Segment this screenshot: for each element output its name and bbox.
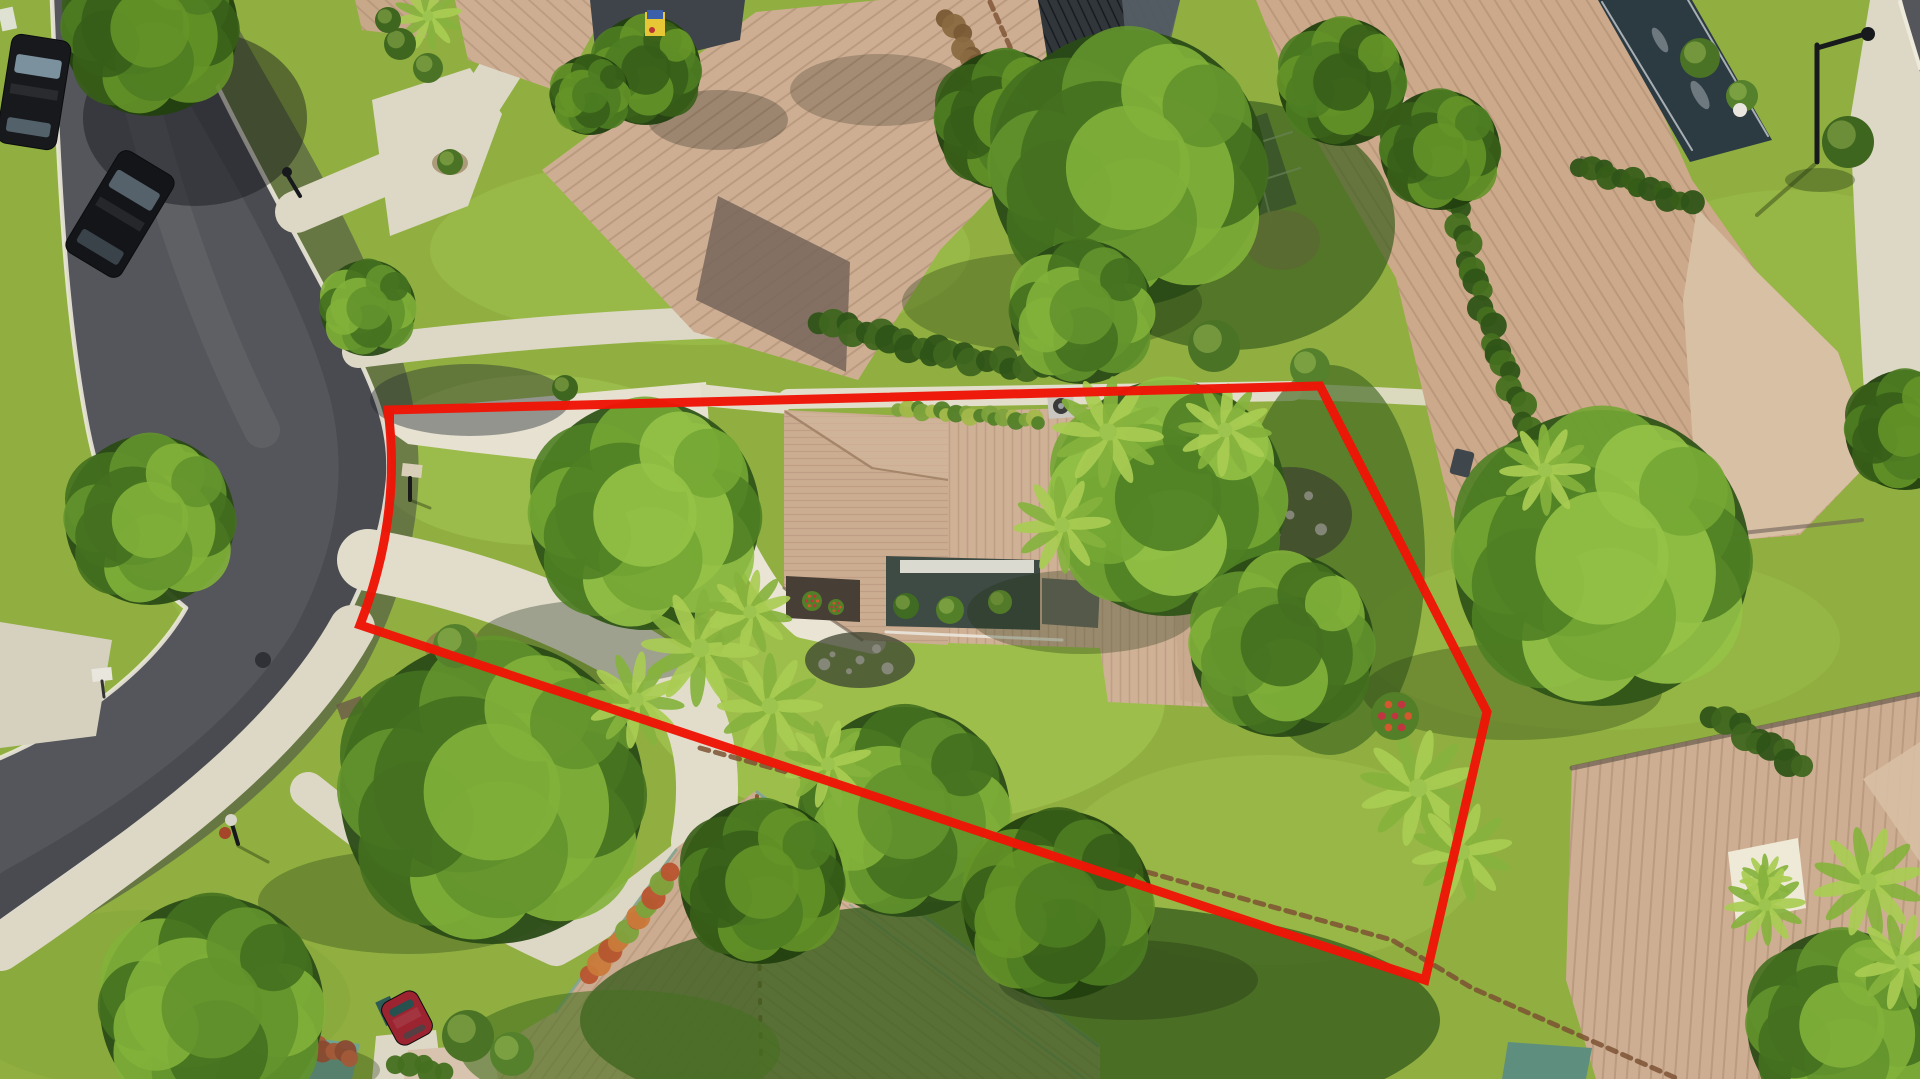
flower-bloom — [811, 600, 814, 603]
bush-highlight — [1827, 120, 1856, 149]
canopy-blob — [162, 958, 263, 1059]
rock — [830, 651, 836, 657]
flower-bloom — [839, 606, 842, 609]
hedge-shrub — [1031, 416, 1045, 430]
rock — [1304, 491, 1313, 500]
hedge-shrub — [661, 863, 680, 882]
entry-flower-pot — [802, 591, 822, 611]
aerial-photo — [0, 0, 1920, 1079]
flower-bloom — [1385, 724, 1393, 732]
palm-crown — [423, 11, 434, 22]
atrium-plant — [893, 593, 919, 619]
bush-highlight — [1684, 41, 1706, 63]
flower-bloom — [813, 595, 816, 598]
rock — [882, 662, 894, 674]
aerial-photo-svg — [0, 0, 1920, 1079]
rock-bed — [805, 632, 915, 688]
flower-bloom — [813, 604, 816, 607]
round-bush — [442, 1010, 494, 1062]
aerial-scene — [0, 0, 1920, 1079]
hedge-shrub — [341, 1050, 358, 1067]
street-lamp-head — [1861, 27, 1875, 41]
palm-crown — [1054, 517, 1069, 532]
rock — [1315, 523, 1327, 535]
palm-crown — [691, 639, 710, 658]
flower-bloom — [1398, 701, 1406, 709]
canopy-blob — [424, 724, 561, 861]
bush-highlight — [387, 31, 405, 49]
canopy-blob — [572, 77, 608, 113]
small-tree — [437, 149, 463, 175]
palm-crown — [1894, 954, 1909, 969]
subject-entry-recess — [786, 576, 860, 622]
palm-crown — [1538, 463, 1552, 477]
canopy-blob — [1413, 123, 1467, 177]
palm-crown — [1409, 779, 1428, 798]
flower-bloom — [837, 610, 840, 613]
round-bush — [413, 53, 443, 83]
hedge-shrub — [1791, 755, 1813, 777]
bush-highlight — [1193, 324, 1222, 353]
flower-bloom — [837, 602, 840, 605]
toy-blue-top — [647, 10, 663, 19]
canopy-blob — [1241, 604, 1324, 687]
flower-bloom — [830, 606, 833, 609]
round-bush — [490, 1032, 534, 1076]
flower-bloom — [833, 610, 836, 613]
rock — [856, 656, 865, 665]
flower-bloom — [1378, 712, 1386, 720]
lamp-post-head — [282, 167, 292, 177]
round-bush — [1680, 38, 1720, 78]
flower-bloom — [816, 599, 819, 602]
flower-bloom — [808, 604, 811, 607]
canopy-blob — [1066, 106, 1190, 230]
walk-corner-bush — [552, 375, 578, 401]
canopy-blob — [1535, 491, 1668, 624]
canopy-blob — [1050, 280, 1115, 345]
lamp-post-cap — [225, 814, 237, 826]
palm-crown — [821, 757, 835, 771]
palm-crown — [743, 605, 756, 618]
round-bush — [1188, 320, 1240, 372]
teal-shed-roof — [1502, 1042, 1592, 1079]
hedge-shrub — [1681, 190, 1705, 214]
rock — [818, 658, 830, 670]
bush-highlight — [416, 56, 433, 73]
palm-crown — [628, 692, 643, 707]
canopy-blob — [1313, 53, 1371, 111]
flower-bloom — [1404, 712, 1412, 720]
entry-flower-pot — [828, 599, 844, 615]
bush-highlight — [378, 9, 392, 23]
bush-highlight — [1729, 83, 1747, 101]
toy-red-detail — [649, 27, 655, 33]
flower-bloom — [1392, 713, 1399, 720]
atrium-plant — [936, 596, 964, 624]
mailbox — [401, 463, 422, 478]
round-bush — [375, 7, 401, 33]
canopy-blob — [593, 463, 697, 567]
flower-bloom — [805, 599, 808, 602]
canopy-blob — [1015, 862, 1101, 948]
far-left-driveway — [0, 622, 112, 748]
flower-bloom — [808, 595, 811, 598]
palm-crown — [762, 698, 779, 715]
bush-highlight — [447, 1014, 476, 1043]
red-marker — [219, 827, 231, 839]
flowering-shrub — [1371, 692, 1419, 740]
round-bush — [1822, 116, 1874, 168]
palm-crown — [1859, 873, 1877, 891]
canopy-blob — [112, 482, 189, 559]
subject-atrium-beam — [900, 560, 1034, 573]
palm-crown — [1759, 899, 1772, 912]
bush-highlight — [896, 595, 910, 609]
flower-bloom — [1398, 724, 1406, 732]
bush-highlight — [555, 377, 569, 391]
bush-highlight — [939, 598, 954, 613]
palm-crown — [1218, 423, 1233, 438]
tree-shadow-on-driveway — [370, 364, 570, 436]
flower-bloom — [835, 606, 837, 608]
canopy-blob — [346, 286, 389, 329]
birdbath — [1733, 103, 1747, 117]
rock — [872, 644, 881, 653]
palm-crown — [1099, 423, 1117, 441]
white-mailbox-post — [102, 681, 104, 697]
rock — [846, 668, 852, 674]
canopy-blob — [725, 845, 799, 919]
bush-highlight — [494, 1036, 518, 1060]
bush-highlight — [1294, 351, 1316, 373]
flower-bloom — [1385, 701, 1393, 709]
manhole-cover — [255, 652, 271, 668]
bush-highlight — [440, 151, 454, 165]
canopy-blob — [858, 765, 953, 860]
flower-bloom — [833, 602, 836, 605]
